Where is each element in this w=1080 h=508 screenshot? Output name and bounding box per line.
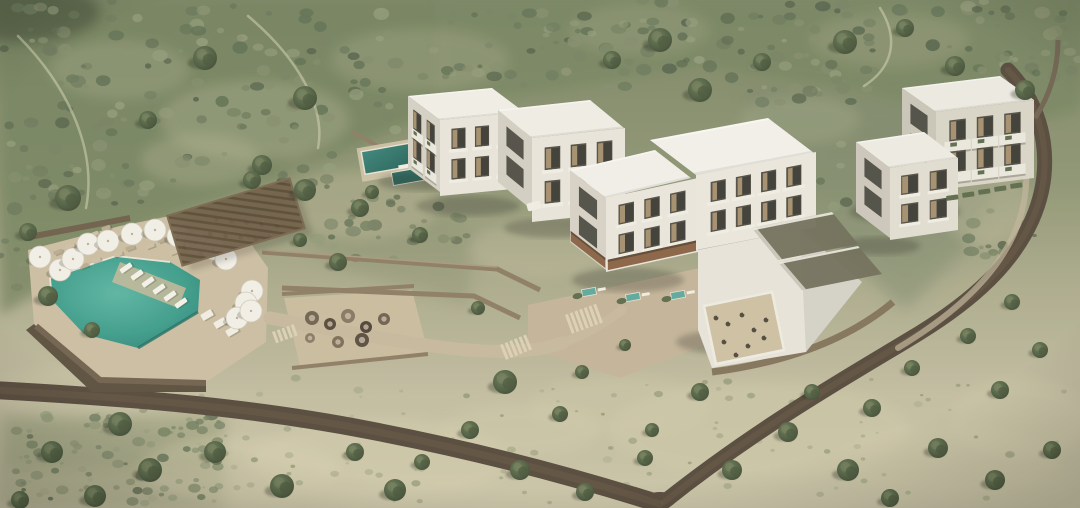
aerial-render-image <box>0 0 1080 508</box>
render-viewport <box>0 0 1080 508</box>
vignette <box>0 0 1080 508</box>
